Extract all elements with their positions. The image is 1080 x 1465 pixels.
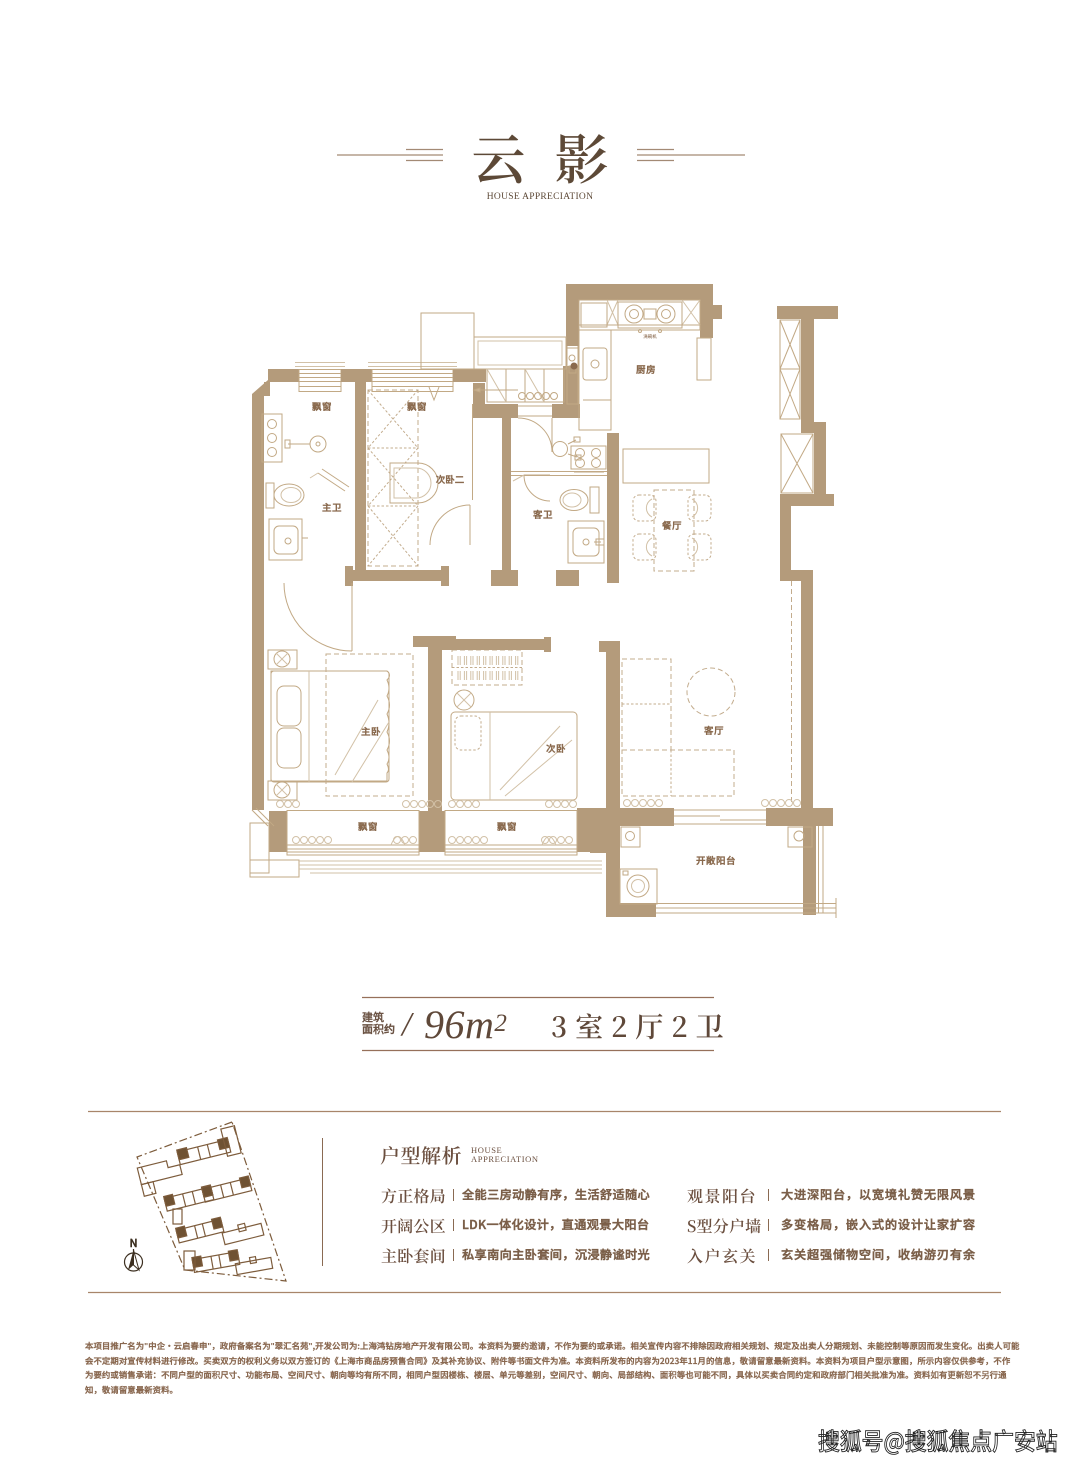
svg-text:飘窗: 飘窗: [496, 819, 517, 833]
svg-text:次卧: 次卧: [546, 741, 566, 755]
svg-text:客卫: 客卫: [532, 507, 553, 521]
svg-text:厨房: 厨房: [636, 362, 656, 376]
svg-text:客厅: 客厅: [703, 723, 724, 737]
svg-text:次卧二: 次卧二: [436, 472, 465, 486]
svg-text:飘窗: 飘窗: [406, 399, 427, 413]
svg-text:飘窗: 飘窗: [311, 399, 332, 413]
svg-text:主卫: 主卫: [322, 500, 342, 514]
svg-text:主卧: 主卧: [361, 724, 381, 738]
svg-text:开敞阳台: 开敞阳台: [696, 853, 736, 867]
svg-text:洗碗机: 洗碗机: [643, 334, 657, 340]
svg-text:飘窗: 飘窗: [357, 819, 378, 833]
svg-text:餐厅: 餐厅: [661, 518, 682, 532]
svg-text:N: N: [129, 1235, 137, 1251]
